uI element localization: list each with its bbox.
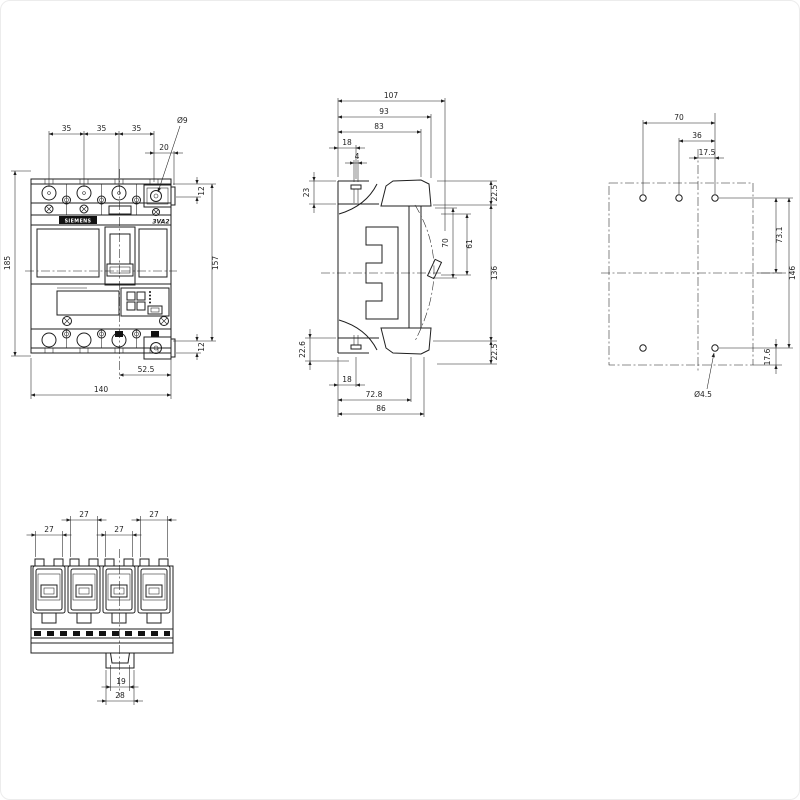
dim-side-72-8: 72.8	[366, 390, 383, 399]
dim-bottom-28: 28	[115, 691, 125, 700]
mounting-dimensions: 70 36 17.5 73.1 146 17.6 Ø4.5	[643, 113, 797, 399]
dim-mount-146: 146	[788, 266, 797, 281]
front-handle-area	[37, 227, 167, 285]
dim-side-86: 86	[376, 404, 386, 413]
dim-bottom-27-p1: 27	[44, 525, 54, 534]
bottom-dimensions: 27 27 27 27 19 28	[27, 510, 177, 705]
dim-mount-17-5: 17.5	[699, 148, 716, 157]
brand-text: SIEMENS	[65, 218, 92, 224]
front-top-box-terminal	[144, 185, 171, 207]
dim-side-93: 93	[379, 107, 389, 116]
breaker-handle	[110, 234, 130, 264]
bottom-view: 27 27 27 27 19 28	[27, 510, 177, 705]
dimension-drawing-page: SIEMENS 3VA2	[0, 0, 800, 800]
front-view: SIEMENS 3VA2	[3, 116, 220, 399]
dim-mount-17-6: 17.6	[763, 348, 772, 365]
dim-front-185: 185	[3, 256, 12, 271]
dim-mount-hole-d4-5: Ø4.5	[694, 390, 712, 399]
dim-side-61: 61	[465, 239, 474, 249]
dim-side-107: 107	[384, 91, 399, 100]
dim-mount-70: 70	[674, 113, 684, 122]
dim-mount-73-1: 73.1	[775, 226, 784, 243]
side-profile	[321, 180, 441, 354]
mounting-view: 70 36 17.5 73.1 146 17.6 Ø4.5	[601, 113, 797, 399]
dim-front-offset-20: 20	[159, 143, 169, 152]
side-handle	[428, 259, 442, 278]
front-trip-unit	[121, 288, 169, 316]
front-dimensions: 35 35 35 20 Ø9 12 157 12 185 52.5 1	[3, 116, 220, 399]
dim-front-12-bottom: 12	[197, 342, 206, 352]
dim-front-hole-d9: Ø9	[177, 116, 188, 125]
dim-bottom-27-p2: 27	[79, 510, 89, 519]
dim-side-18-bottom: 18	[342, 375, 352, 384]
dim-front-pitch-1: 35	[62, 124, 72, 133]
front-bottom-terminals	[42, 330, 175, 359]
dim-front-pitch-3: 35	[132, 124, 142, 133]
front-rating-label	[57, 288, 119, 315]
bottom-terminal-cages	[33, 559, 170, 623]
dim-bottom-27-p3: 27	[114, 525, 124, 534]
dim-front-140: 140	[94, 385, 109, 394]
dim-side-18-top: 18	[342, 138, 352, 147]
dim-front-12-top: 12	[197, 186, 206, 196]
model-text: 3VA2	[152, 219, 169, 226]
front-top-terminals	[42, 185, 175, 216]
dim-side-70: 70	[441, 238, 450, 248]
dim-front-157: 157	[211, 256, 220, 271]
dim-front-52-5: 52.5	[138, 365, 155, 374]
bottom-base	[31, 629, 173, 668]
technical-drawing: SIEMENS 3VA2	[1, 1, 800, 800]
dim-side-22-5-bottom: 22.5	[490, 343, 499, 360]
dim-side-22-5-top: 22.5	[490, 184, 499, 201]
dim-bottom-19: 19	[116, 677, 126, 686]
dim-bottom-27-p4: 27	[149, 510, 159, 519]
dim-mount-36: 36	[692, 131, 702, 140]
dim-side-83: 83	[374, 122, 384, 131]
dim-front-pitch-2: 35	[97, 124, 107, 133]
mounting-plate-outline	[609, 183, 753, 365]
dim-side-23: 23	[302, 188, 311, 198]
dim-side-4: 4	[355, 152, 360, 161]
dim-side-22-6: 22.6	[298, 341, 307, 358]
din-rail-tab	[106, 653, 134, 668]
dim-side-136: 136	[490, 266, 499, 281]
side-view: 107 93 83 18 4 23 22.6 22.5	[298, 91, 499, 417]
